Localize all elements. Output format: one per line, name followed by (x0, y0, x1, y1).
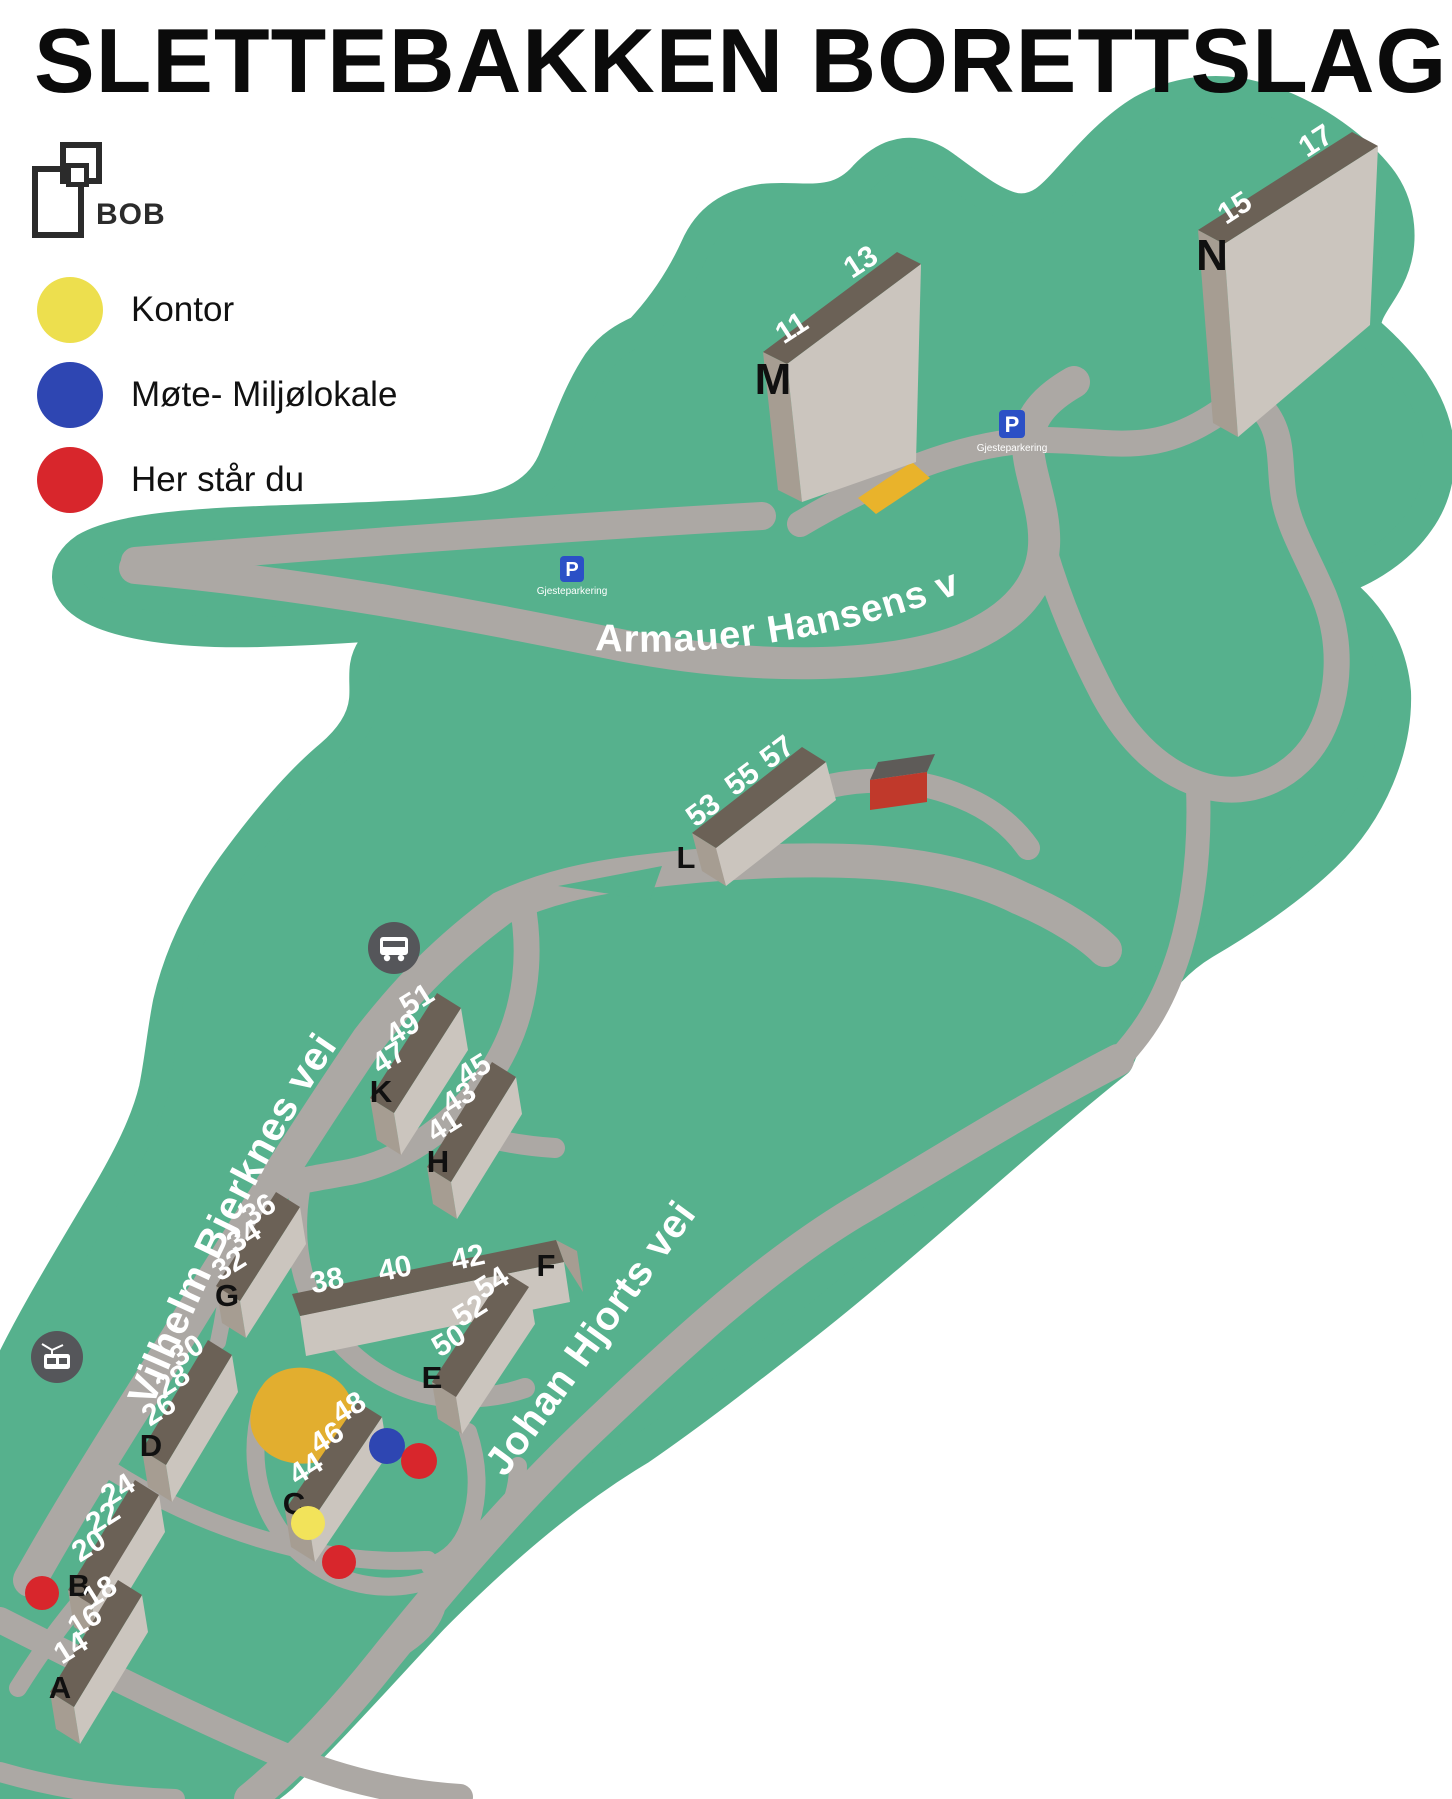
site-map: 15 17 N 11 13 M 53 55 57 L 47 49 (0, 0, 1452, 1799)
building-letter: A (49, 1670, 71, 1705)
building-letter: F (537, 1248, 556, 1283)
marker-office (291, 1506, 325, 1540)
legend-label: Kontor (131, 290, 234, 330)
parking-symbol: P (565, 559, 578, 581)
legend-item-meeting: Møte- Miljølokale (37, 362, 397, 428)
legend-label: Møte- Miljølokale (131, 375, 397, 415)
logo-text: BOB (96, 198, 166, 232)
building-letter: K (370, 1074, 393, 1109)
building-letter: N (1196, 231, 1228, 280)
kontor-dot-icon (37, 277, 103, 343)
bus-stop (368, 922, 420, 974)
bob-logo: BOB (32, 142, 222, 242)
marker-meeting-room (369, 1428, 405, 1464)
legend: Kontor Møte- Miljølokale Her står du (37, 277, 397, 532)
building-letter: L (677, 840, 696, 875)
map-page: 15 17 N 11 13 M 53 55 57 L 47 49 (0, 0, 1452, 1799)
tram-stop (31, 1331, 83, 1383)
building-letter: E (422, 1360, 443, 1395)
legend-item-you-are-here: Her står du (37, 447, 397, 513)
red-shed (870, 754, 935, 810)
parking-caption: Gjesteparkering (537, 586, 608, 597)
legend-item-office: Kontor (37, 277, 397, 343)
legend-label: Her står du (131, 460, 304, 500)
parking-symbol: P (1005, 412, 1020, 437)
building-letter: G (215, 1278, 239, 1313)
meeting-dot-icon (37, 362, 103, 428)
building-number: 38 (307, 1261, 347, 1300)
you-are-here-dot-icon (37, 447, 103, 513)
building-letter: D (140, 1428, 162, 1463)
marker-you-are-here (25, 1576, 59, 1610)
building-number: 40 (375, 1249, 415, 1288)
building-letter: H (427, 1144, 449, 1179)
parking-caption: Gjesteparkering (977, 443, 1048, 454)
marker-you-are-here (322, 1545, 356, 1579)
logo-square-small (66, 163, 89, 187)
building-letter: M (755, 355, 792, 404)
marker-you-are-here (401, 1443, 437, 1479)
page-title: SLETTEBAKKEN BORETTSLAG (34, 10, 1447, 114)
